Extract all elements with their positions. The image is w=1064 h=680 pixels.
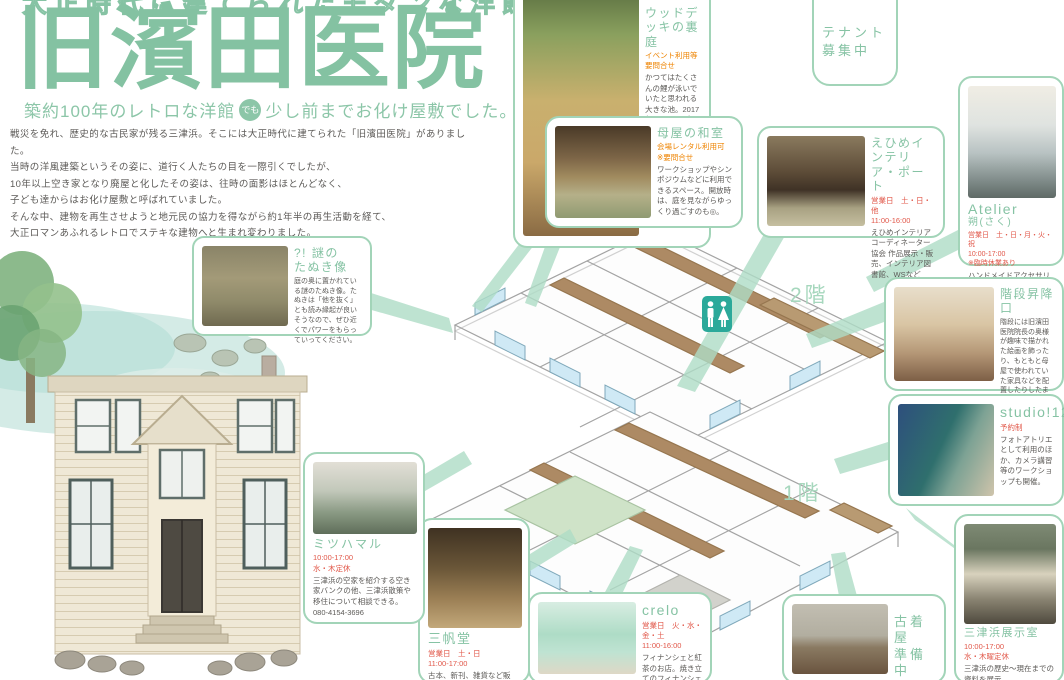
exhibit-closed: 水・木曜定休 bbox=[964, 652, 1054, 662]
card-atelier-saku: Atelier 朔(さく) 営業日 土・日・月・火・祝 10:00-17:00 … bbox=[958, 76, 1064, 266]
intro-line: 当時の洋風建築というその姿に、道行く人たちの目を一際引くでしたが、 bbox=[10, 160, 480, 177]
washitsu-body: ワークショップやシンポジウムなどに利用できるスペース。開放時は、庭を見ながらゆっ… bbox=[657, 165, 733, 218]
furugiya-photo bbox=[792, 604, 888, 674]
card-washitsu: 母屋の和室 会場レンタル利用可 ※要問合せ ワークショップやシンポジウムなどに利… bbox=[545, 116, 743, 228]
exhibit-body: 三津浜の歴史〜現在までの資料を展示 bbox=[964, 664, 1054, 680]
studio125-title: studio!125 bbox=[1000, 404, 1054, 421]
wood-deck-note: イベント利用等要問合せ bbox=[645, 51, 701, 71]
intro-line: 子ども達からはお化け屋敷と呼ばれていました。 bbox=[10, 193, 480, 210]
pamphlet-page: 2階 1階 bbox=[0, 0, 1064, 680]
ehime-interior-hours: 11:00-16:00 bbox=[871, 216, 935, 226]
crelo-hours: 11:00-16:00 bbox=[642, 641, 702, 651]
sanpodo-hours: 11:00-17:00 bbox=[428, 659, 520, 669]
exhibit-title: 三津浜展示室 bbox=[964, 627, 1054, 640]
floor2-label: 2階 bbox=[790, 284, 829, 307]
washitsu-note: 会場レンタル利用可 bbox=[657, 142, 733, 152]
furugiya-title-line2: 準備中 bbox=[894, 647, 936, 678]
wood-deck-title: ウッドデッキの裏庭 bbox=[645, 6, 701, 49]
tanuki-body: 庭の奥に置かれている謎のたぬき像。たぬきは「他を抜く」とも読み縁起が良いそうなの… bbox=[294, 277, 362, 346]
atelier-schedule: 営業日 土・日・月・火・祝 bbox=[968, 231, 1054, 250]
subtitle-pre: 築約100年のレトロな洋館 bbox=[24, 97, 235, 122]
mitsuhamaru-hours: 10:00-17:00 bbox=[313, 553, 415, 563]
subtitle: 築約100年のレトロな洋館 でも 少し前までお化け屋敷でした。 bbox=[24, 97, 517, 122]
crelo-photo bbox=[538, 602, 636, 674]
intro-line: 戦災を免れ、歴史的な古民家が残る三津浜。そこには大正時代に建てられた「旧濱田医院… bbox=[10, 127, 480, 160]
atelier-hours: 10:00-17:00 bbox=[968, 250, 1054, 259]
sanpodo-title: 三帆堂 bbox=[428, 631, 520, 647]
exhibit-photo bbox=[964, 524, 1056, 624]
sanpodo-photo bbox=[428, 528, 522, 628]
crelo-title: crelo bbox=[642, 602, 702, 619]
porch bbox=[133, 396, 231, 643]
floorplan-2f bbox=[455, 228, 888, 455]
house-facade bbox=[48, 356, 307, 675]
mitsuhamaru-closed: 水・木定休 bbox=[313, 564, 415, 574]
atelier-title: Atelier bbox=[968, 201, 1054, 218]
mitsuhamaru-title: ミツハマル bbox=[313, 537, 415, 551]
card-furugiya: 古着屋 準備中 bbox=[782, 594, 946, 680]
card-mitsuhamaru: ミツハマル 10:00-17:00 水・木定休 三津浜の空家を紹介する空き家バン… bbox=[303, 452, 425, 624]
demo-badge: でも bbox=[239, 99, 261, 121]
card-studio125: studio!125 予約制 フォトアトリエとして利用のほか、カメラ講習等のワー… bbox=[888, 394, 1064, 506]
floor1-label: 1階 bbox=[783, 482, 822, 505]
studio125-body: フォトアトリエとして利用のほか、カメラ講習等のワークショップも開催。 bbox=[1000, 435, 1054, 488]
mitsuhamaru-photo bbox=[313, 462, 417, 534]
card-mitsuhama-exhibit: 三津浜展示室 10:00-17:00 水・木曜定休 三津浜の歴史〜現在までの資料… bbox=[954, 514, 1064, 680]
ehime-interior-photo bbox=[767, 136, 865, 226]
ehime-interior-title: えひめインテリア・ポート bbox=[871, 136, 935, 194]
stairs-photo bbox=[894, 287, 994, 381]
furugiya-title-line1: 古着屋 bbox=[894, 614, 936, 645]
sanpodo-schedule: 営業日 土・日 bbox=[428, 649, 520, 659]
sanpodo-body: 古本、新刊、雑貨など販売。三津浜地区内や、他地区で本 bbox=[428, 671, 520, 680]
tanuki-title: たぬき像 bbox=[294, 260, 362, 274]
card-ehime-interior: えひめインテリア・ポート 営業日 土・日・他 11:00-16:00 えひめイン… bbox=[757, 126, 945, 238]
mitsuhamaru-body: 三津浜の空家を紹介する空き家バンクの他、三津浜散策や移住について相談できる。 bbox=[313, 576, 415, 608]
tanuki-title-prefix: ?! 謎の bbox=[294, 246, 362, 260]
card-tanuki: ?! 謎の たぬき像 庭の奥に置かれている謎のたぬき像。たぬきは「他を抜く」とも… bbox=[192, 236, 372, 336]
studio125-note: 予約制 bbox=[1000, 423, 1054, 433]
washitsu-photo bbox=[555, 126, 651, 218]
atelier-note: ※臨時休業あり bbox=[968, 259, 1054, 268]
card-sanpodo: 三帆堂 営業日 土・日 11:00-17:00 古本、新刊、雑貨など販売。三津浜… bbox=[418, 518, 530, 680]
crelo-body: フィナンシェと紅茶のお店。焼き立てのフィナンシェも数量限定で販売。 bbox=[642, 653, 702, 680]
tanuki-photo bbox=[202, 246, 288, 326]
card-tenant: テナント募集中 bbox=[812, 0, 898, 86]
crelo-schedule: 営業日 火・水・金・土 bbox=[642, 621, 702, 641]
intro-line: 10年以上空き家となり廃屋と化したその姿は、往時の面影はほとんどなく、 bbox=[10, 177, 480, 194]
washitsu-title: 母屋の和室 bbox=[657, 126, 733, 140]
ehime-interior-body: えひめインテリアコーディネーター協会 作品展示・販売、インテリア図書館、WSなど bbox=[871, 228, 935, 281]
studio125-photo bbox=[898, 404, 994, 496]
card-crelo: crelo 営業日 火・水・金・土 11:00-16:00 フィナンシェと紅茶の… bbox=[528, 592, 712, 680]
mitsuhamaru-phone: 080-4154-3696 bbox=[313, 608, 415, 617]
tenant-title: テナント募集中 bbox=[822, 24, 888, 60]
subtitle-post: 少し前までお化け屋敷でした。 bbox=[265, 97, 517, 122]
washitsu-note2: ※要問合せ bbox=[657, 153, 733, 163]
exhibit-hours: 10:00-17:00 bbox=[964, 642, 1054, 652]
ehime-interior-schedule: 営業日 土・日・他 bbox=[871, 196, 935, 216]
atelier-subtitle: 朔(さく) bbox=[968, 217, 1054, 229]
card-stairs: 階段昇降口 階段には旧濱田医院院長の奥様が趣味で描かれた絵画を飾ったり、もともと… bbox=[884, 277, 1064, 391]
stairs-title: 階段昇降口 bbox=[1000, 287, 1054, 316]
page-title: 旧濱田医院 bbox=[16, 2, 486, 94]
atelier-photo bbox=[968, 86, 1056, 198]
